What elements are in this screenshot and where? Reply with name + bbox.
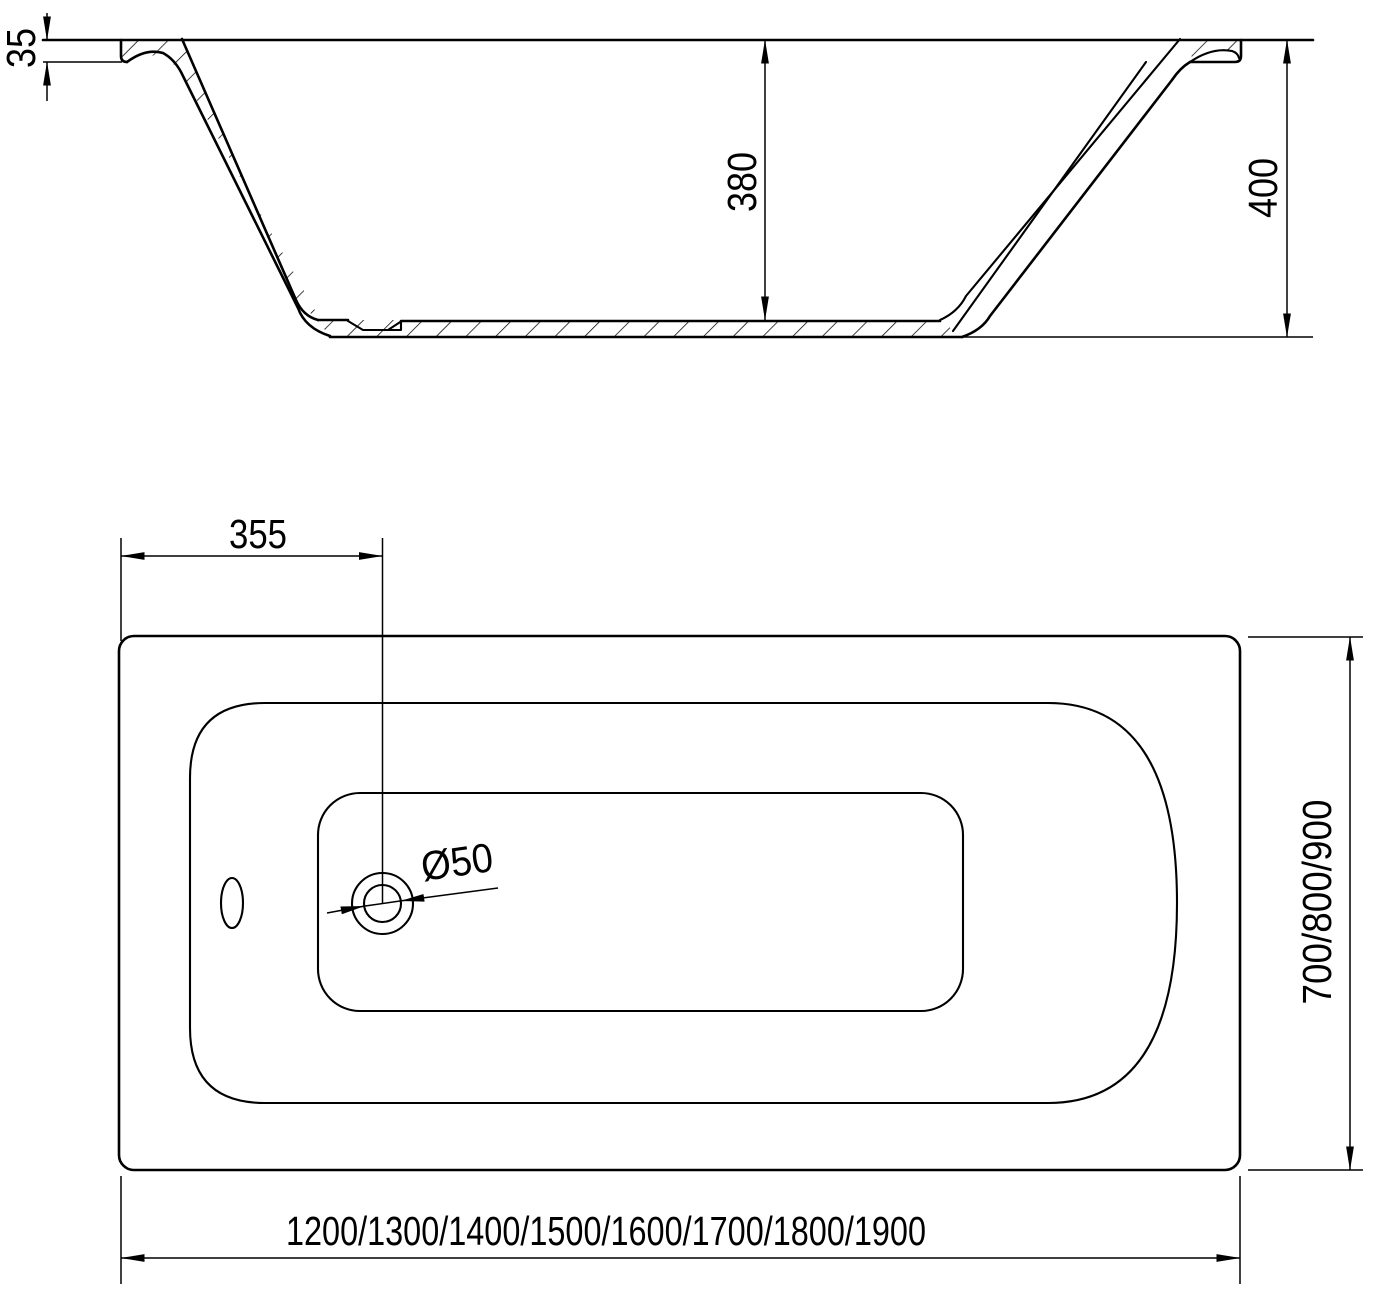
dim-width-options: 700/800/900 <box>1248 637 1363 1170</box>
dim-length-options: 1200/1300/1400/1500/1600/1700/1800/1900 <box>121 1176 1240 1284</box>
plan-floor-edge <box>318 793 963 1011</box>
floor-top-line <box>318 320 940 321</box>
plan-view: 355 Ø50 700/800/900 1200/1300/1400/1500/… <box>119 511 1363 1284</box>
dim-drain-offset: 355 <box>121 511 383 641</box>
floor-hatch <box>318 320 962 337</box>
dim-rim-thickness: 35 <box>0 13 47 101</box>
technical-drawing-canvas: 35 380 400 355 <box>0 0 1377 1289</box>
dim-drain-offset-label: 355 <box>229 511 287 557</box>
dim-width-options-label: 700/800/900 <box>1294 800 1340 1005</box>
dim-inner-depth-label: 380 <box>719 152 765 212</box>
overflow-hole <box>221 878 243 928</box>
dim-rim-thickness-label: 35 <box>0 28 44 68</box>
dim-overall-height: 400 <box>1240 40 1287 337</box>
right-wall-fold <box>953 62 1146 331</box>
bathtub-technical-drawing: 35 380 400 355 <box>0 0 1377 1289</box>
dim-inner-depth: 380 <box>719 40 765 320</box>
left-wall-hatch <box>121 39 330 337</box>
right-wall-inner <box>940 39 1180 320</box>
side-view-section: 35 380 400 <box>0 13 1313 337</box>
dim-length-options-label: 1200/1300/1400/1500/1600/1700/1800/1900 <box>286 1208 926 1254</box>
dim-drain-diameter-label: Ø50 <box>418 834 496 890</box>
dim-overall-height-label: 400 <box>1240 158 1286 218</box>
left-wall-inner <box>182 39 318 320</box>
right-wall-outer <box>962 62 1190 337</box>
plan-outer-edge <box>119 636 1240 1170</box>
plan-basin-edge <box>190 703 1177 1103</box>
